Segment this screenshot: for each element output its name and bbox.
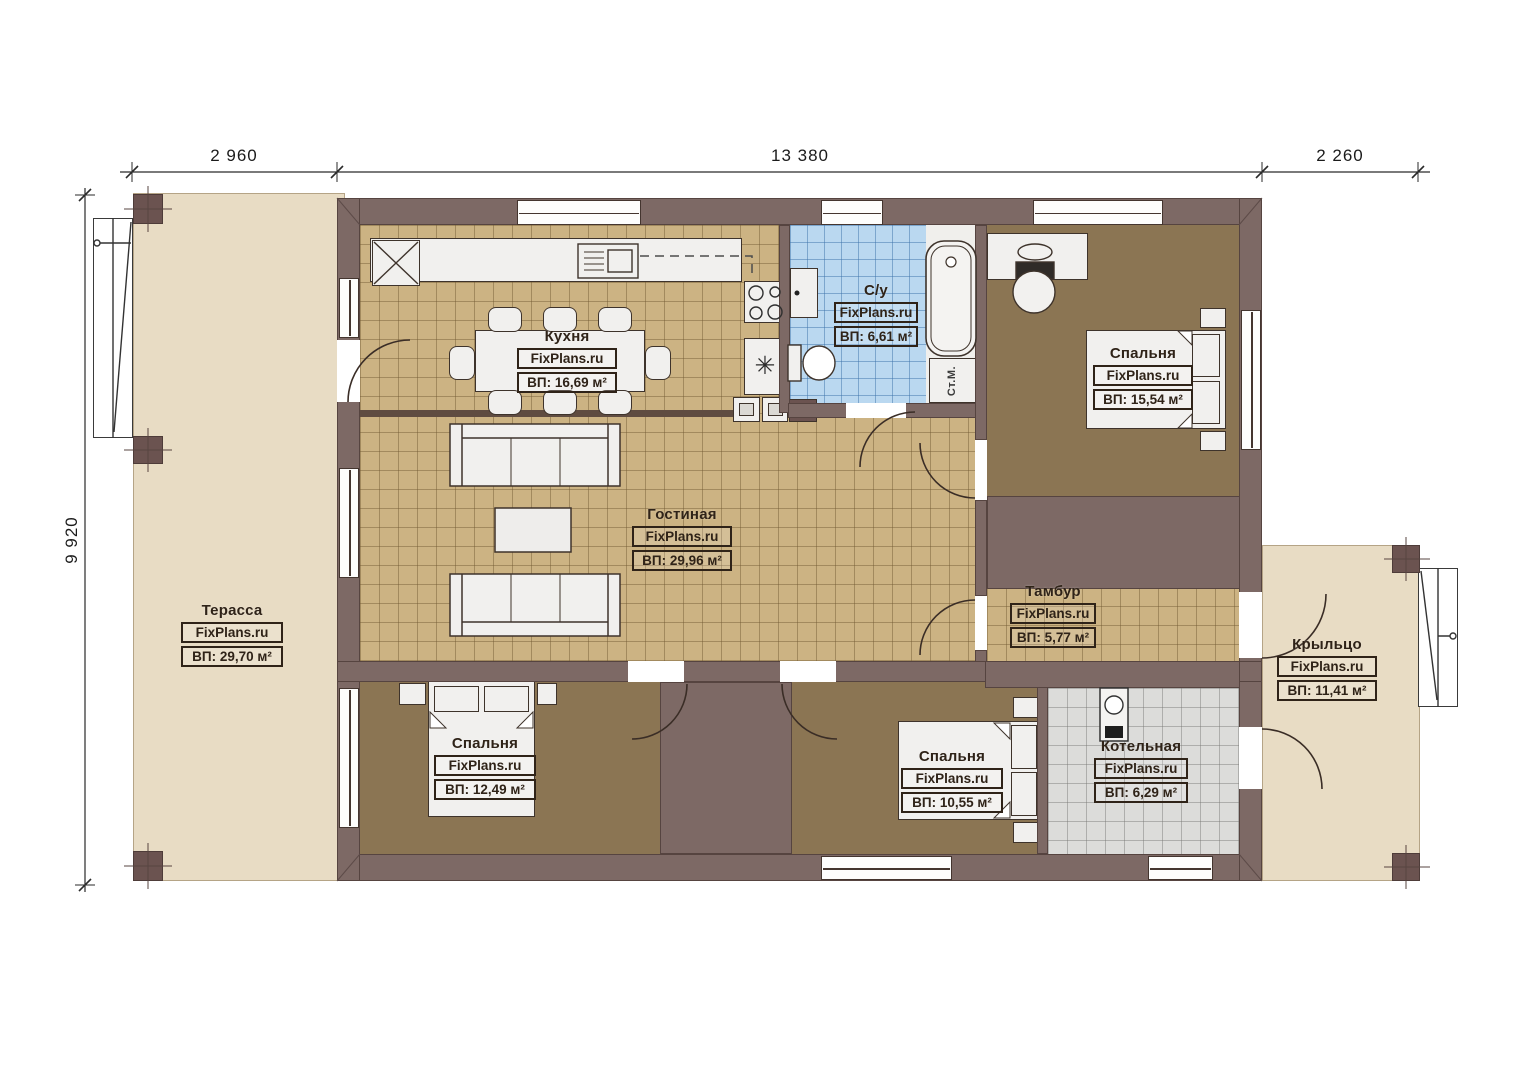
room-name: С/у bbox=[834, 282, 918, 299]
kitchen-counter bbox=[370, 238, 742, 282]
door-opening-porch-bottom bbox=[1239, 727, 1262, 789]
pillow bbox=[484, 686, 529, 712]
washing-machine: Ст.М. bbox=[929, 358, 976, 403]
room-name: Спальня bbox=[901, 748, 1003, 765]
dining-chair bbox=[449, 346, 475, 380]
brand-watermark: FixPlans.ru bbox=[632, 526, 732, 547]
door-opening-bedroom-left bbox=[628, 661, 684, 682]
dimension-label-top-right: 2 260 bbox=[1280, 146, 1400, 166]
door-opening-bedroom-middle bbox=[780, 661, 836, 682]
interior-wall bbox=[975, 225, 987, 440]
door-opening-vestibule bbox=[975, 596, 987, 650]
terrace-post bbox=[133, 194, 163, 224]
pillow bbox=[1011, 725, 1037, 769]
dimension-label-left: 9 920 bbox=[62, 480, 82, 600]
room-label-porch: Крыльцо FixPlans.ru ВП: 11,41 м² bbox=[1277, 636, 1377, 701]
nightstand bbox=[1200, 308, 1226, 328]
room-area: ВП: 15,54 м² bbox=[1093, 389, 1193, 410]
room-area: ВП: 5,77 м² bbox=[1010, 627, 1096, 648]
cabinet-door bbox=[739, 403, 754, 416]
appliance-box bbox=[372, 240, 420, 286]
window bbox=[339, 278, 359, 338]
nightstand bbox=[1013, 822, 1038, 843]
window bbox=[339, 688, 359, 828]
brand-watermark: FixPlans.ru bbox=[517, 348, 617, 369]
vestibule-boiler-wall bbox=[985, 661, 1240, 688]
room-name: Терасса bbox=[181, 602, 283, 619]
room-area: ВП: 29,96 м² bbox=[632, 550, 732, 571]
brand-watermark: FixPlans.ru bbox=[1010, 603, 1096, 624]
door-opening-porch-top bbox=[1239, 592, 1262, 658]
dining-chair bbox=[543, 390, 577, 415]
bathroom-wall-left bbox=[779, 225, 790, 413]
window bbox=[1148, 856, 1213, 880]
pillow bbox=[1192, 334, 1220, 377]
room-area: ВП: 12,49 м² bbox=[434, 779, 536, 800]
room-name: Котельная bbox=[1094, 738, 1188, 755]
room-name: Кухня bbox=[517, 328, 617, 345]
brand-watermark: FixPlans.ru bbox=[834, 302, 918, 323]
dimension-label-top-left: 2 960 bbox=[174, 146, 294, 166]
window bbox=[1241, 310, 1261, 450]
door-opening-bedroom-right bbox=[975, 440, 987, 500]
washbasin bbox=[790, 268, 818, 318]
brand-watermark: FixPlans.ru bbox=[1093, 365, 1193, 386]
room-area: ВП: 6,61 м² bbox=[834, 326, 918, 347]
room-label-vestibule: Тамбур FixPlans.ru ВП: 5,77 м² bbox=[1010, 583, 1096, 648]
porch-deck bbox=[1262, 545, 1420, 881]
pillow bbox=[434, 686, 479, 712]
terrace-post bbox=[133, 851, 163, 881]
brand-watermark: FixPlans.ru bbox=[1277, 656, 1377, 677]
nightstand bbox=[1013, 697, 1038, 718]
room-label-bedroom-right: Спальня FixPlans.ru ВП: 15,54 м² bbox=[1093, 345, 1193, 410]
room-area: ВП: 16,69 м² bbox=[517, 372, 617, 393]
dining-chair bbox=[645, 346, 671, 380]
nightstand bbox=[1200, 431, 1226, 451]
dimension-label-top-middle: 13 380 bbox=[740, 146, 860, 166]
room-label-bedroom-middle: Спальня FixPlans.ru ВП: 10,55 м² bbox=[901, 748, 1003, 813]
room-name: Спальня bbox=[1093, 345, 1193, 362]
room-name: Спальня bbox=[434, 735, 536, 752]
room-label-kitchen: Кухня FixPlans.ru ВП: 16,69 м² bbox=[517, 328, 617, 393]
dining-chair bbox=[598, 390, 632, 415]
door-opening-bathroom bbox=[846, 403, 906, 418]
brand-watermark: FixPlans.ru bbox=[181, 622, 283, 643]
room-label-terrace: Терасса FixPlans.ru ВП: 29,70 м² bbox=[181, 602, 283, 667]
room-name: Тамбур bbox=[1010, 583, 1096, 600]
exterior-wall-bottom bbox=[337, 854, 1262, 881]
pillow bbox=[1192, 381, 1220, 424]
terrace-post bbox=[133, 436, 163, 464]
terrace-deck bbox=[133, 193, 345, 881]
floor-plan-canvas: ✳ Ст.М. bbox=[0, 0, 1528, 1080]
interior-wall bbox=[975, 500, 987, 596]
room-name: Гостиная bbox=[632, 506, 732, 523]
fridge-snowflake-icon: ✳ bbox=[751, 352, 779, 380]
window bbox=[517, 200, 641, 225]
window bbox=[821, 200, 883, 225]
washing-machine-label: Ст.М. bbox=[946, 365, 958, 395]
hall-cabinet bbox=[733, 397, 760, 422]
room-name: Крыльцо bbox=[1277, 636, 1377, 653]
window bbox=[1033, 200, 1163, 225]
room-area: ВП: 6,29 м² bbox=[1094, 782, 1188, 803]
room-label-living-room: Гостиная FixPlans.ru ВП: 29,96 м² bbox=[632, 506, 732, 571]
room-area: ВП: 11,41 м² bbox=[1277, 680, 1377, 701]
corridor-wall-block bbox=[660, 682, 792, 854]
room-label-boiler-room: Котельная FixPlans.ru ВП: 6,29 м² bbox=[1094, 738, 1188, 803]
room-label-bedroom-left: Спальня FixPlans.ru ВП: 12,49 м² bbox=[434, 735, 536, 800]
brand-watermark: FixPlans.ru bbox=[1094, 758, 1188, 779]
brand-watermark: FixPlans.ru bbox=[434, 755, 536, 776]
wardrobe-wall-strip bbox=[987, 496, 1240, 589]
pillow bbox=[1011, 772, 1037, 816]
brand-watermark: FixPlans.ru bbox=[901, 768, 1003, 789]
bedroom-boiler-wall bbox=[1037, 682, 1048, 854]
window bbox=[339, 468, 359, 578]
desk bbox=[987, 233, 1088, 280]
porch-post bbox=[1392, 545, 1420, 573]
nightstand bbox=[399, 683, 426, 705]
dining-chair bbox=[488, 390, 522, 415]
terrace-stairs bbox=[93, 218, 133, 438]
door-opening-terrace bbox=[337, 340, 360, 402]
room-area: ВП: 10,55 м² bbox=[901, 792, 1003, 813]
porch-stairs bbox=[1418, 568, 1458, 707]
nightstand bbox=[537, 683, 557, 705]
porch-post bbox=[1392, 853, 1420, 881]
room-area: ВП: 29,70 м² bbox=[181, 646, 283, 667]
window bbox=[821, 856, 952, 880]
room-label-bathroom: С/у FixPlans.ru ВП: 6,61 м² bbox=[834, 282, 918, 347]
